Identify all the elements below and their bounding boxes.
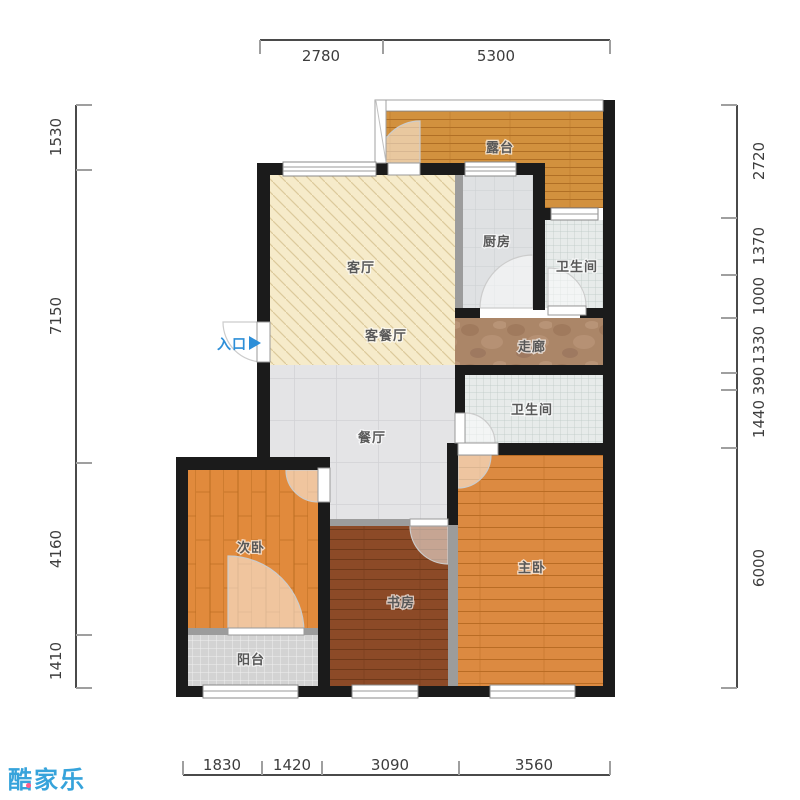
wall-left-upper xyxy=(257,163,270,322)
terrace-railing-top xyxy=(375,100,603,111)
second-bedroom-door-leaf[interactable] xyxy=(318,468,330,502)
dim-left-1: 7150 xyxy=(47,297,65,335)
dim-right-2: 1000 xyxy=(750,277,768,315)
terrace-door-opening[interactable] xyxy=(388,163,420,175)
dimension-chain-right: 2720 1370 1000 1330 390 1440 6000 xyxy=(721,105,768,688)
master-bedroom-door-opening[interactable] xyxy=(458,443,498,455)
logo-accent-dot xyxy=(26,783,31,788)
label-bathroom-1: 卫生间 xyxy=(556,259,598,275)
dimension-chain-bottom: 1830 1420 3090 3560 xyxy=(183,756,610,775)
label-study: 书房 xyxy=(387,595,415,611)
label-bathroom-2: 卫生间 xyxy=(511,402,553,418)
label-master-bedroom: 主卧 xyxy=(518,560,546,576)
window-balcony[interactable] xyxy=(203,685,298,698)
wall-corridor-bottom xyxy=(455,365,603,375)
dim-left-3: 1410 xyxy=(47,642,65,680)
window-kitchen-top[interactable] xyxy=(465,162,516,176)
dim-bottom-0: 1830 xyxy=(203,756,241,774)
dimension-chain-left: 1530 7150 4160 1410 xyxy=(47,105,92,688)
wall-top-3 xyxy=(420,163,465,175)
window-bathroom-1[interactable] xyxy=(551,208,598,220)
wall-kitchen-living xyxy=(455,163,463,308)
floorplan-canvas: 入口 露台 厨房 卫生间 客厅 客餐厅 走廊 卫生间 餐厅 次卧 主卧 书房 阳… xyxy=(0,0,800,800)
label-kitchen: 厨房 xyxy=(483,234,511,250)
label-second-bedroom: 次卧 xyxy=(237,540,265,556)
dim-right-6: 6000 xyxy=(750,549,768,587)
balcony-door-opening[interactable] xyxy=(228,628,304,635)
wall-master-left xyxy=(447,443,458,525)
dim-left-2: 4160 xyxy=(47,530,65,568)
wall-bath2-left-upper xyxy=(455,375,465,413)
dim-left-0: 1530 xyxy=(47,118,65,156)
bathroom-2-door-leaf[interactable] xyxy=(455,413,465,443)
wall-kitchen-bottom xyxy=(455,308,480,318)
kujiale-logo: 酷家乐 xyxy=(8,760,86,795)
dim-bottom-3: 3560 xyxy=(515,756,553,774)
dimension-chain-top: 2780 5300 xyxy=(260,40,610,65)
wall-study-master xyxy=(448,519,458,686)
wall-top-2 xyxy=(376,163,388,175)
wall-far-left xyxy=(176,457,188,697)
dim-right-5: 1440 xyxy=(750,400,768,438)
bathroom-1-door-leaf[interactable] xyxy=(548,306,586,315)
wall-bedroom2-top xyxy=(176,457,330,470)
dim-right-1: 1370 xyxy=(750,227,768,265)
label-living-dining: 客餐厅 xyxy=(365,328,407,344)
wall-kitchen-right xyxy=(533,163,545,310)
window-study[interactable] xyxy=(352,685,418,698)
dim-bottom-2: 3090 xyxy=(371,756,409,774)
dim-right-3: 1330 xyxy=(750,326,768,364)
dim-top-0: 2780 xyxy=(302,47,340,65)
wall-left-lower xyxy=(257,362,270,463)
label-terrace: 露台 xyxy=(486,140,514,156)
wall-master-top xyxy=(498,443,603,455)
wall-right xyxy=(603,100,615,697)
label-balcony: 阳台 xyxy=(237,652,265,668)
dim-top-1: 5300 xyxy=(477,47,515,65)
dim-right-0: 2720 xyxy=(750,142,768,180)
label-living: 客厅 xyxy=(347,260,375,276)
label-corridor: 走廊 xyxy=(518,339,546,355)
entrance-label: 入口 xyxy=(217,337,247,353)
wall-terrace-stub xyxy=(545,208,551,220)
window-living-top[interactable] xyxy=(283,162,376,176)
label-dining: 餐厅 xyxy=(357,430,386,446)
dim-bottom-1: 1420 xyxy=(273,756,311,774)
window-master-bedroom[interactable] xyxy=(490,685,575,698)
study-door-leaf[interactable] xyxy=(410,519,448,526)
floorplan-viewer: 入口 露台 厨房 卫生间 客厅 客餐厅 走廊 卫生间 餐厅 次卧 主卧 书房 阳… xyxy=(0,0,800,800)
dim-right-4: 390 xyxy=(750,367,768,396)
